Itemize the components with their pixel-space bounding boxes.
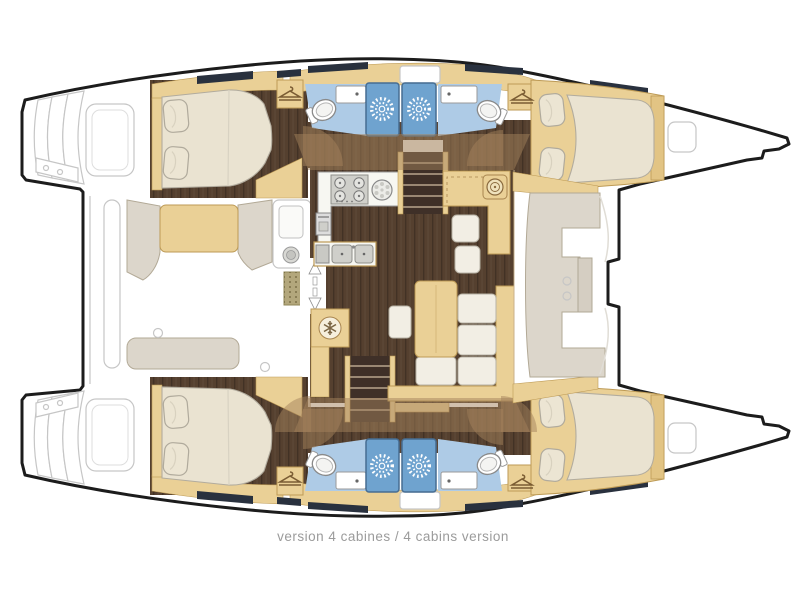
caption: version 4 cabines / 4 cabins version <box>277 529 509 544</box>
round-drainer-icon <box>372 180 392 200</box>
oven-icon <box>316 213 331 235</box>
nav-seat-cushion <box>452 215 479 242</box>
coachroof-shadow-bottom <box>294 398 530 432</box>
cockpit-bench-wing-right <box>238 200 272 270</box>
fridge-snowflake-icon <box>319 317 341 339</box>
boat-floor-plan: version 4 cabines / 4 cabins version <box>0 0 800 600</box>
nav-seat-cushion <box>455 246 480 273</box>
cockpit-aft-bench <box>127 338 239 369</box>
floor-plan-canvas: version 4 cabines / 4 cabins version <box>0 0 800 600</box>
stove-burners-icon <box>331 175 368 204</box>
double-sink-icon <box>316 245 373 263</box>
cockpit-bench-cushion <box>160 205 238 252</box>
coachroof-shadow-top <box>294 134 530 170</box>
saloon <box>275 134 537 432</box>
